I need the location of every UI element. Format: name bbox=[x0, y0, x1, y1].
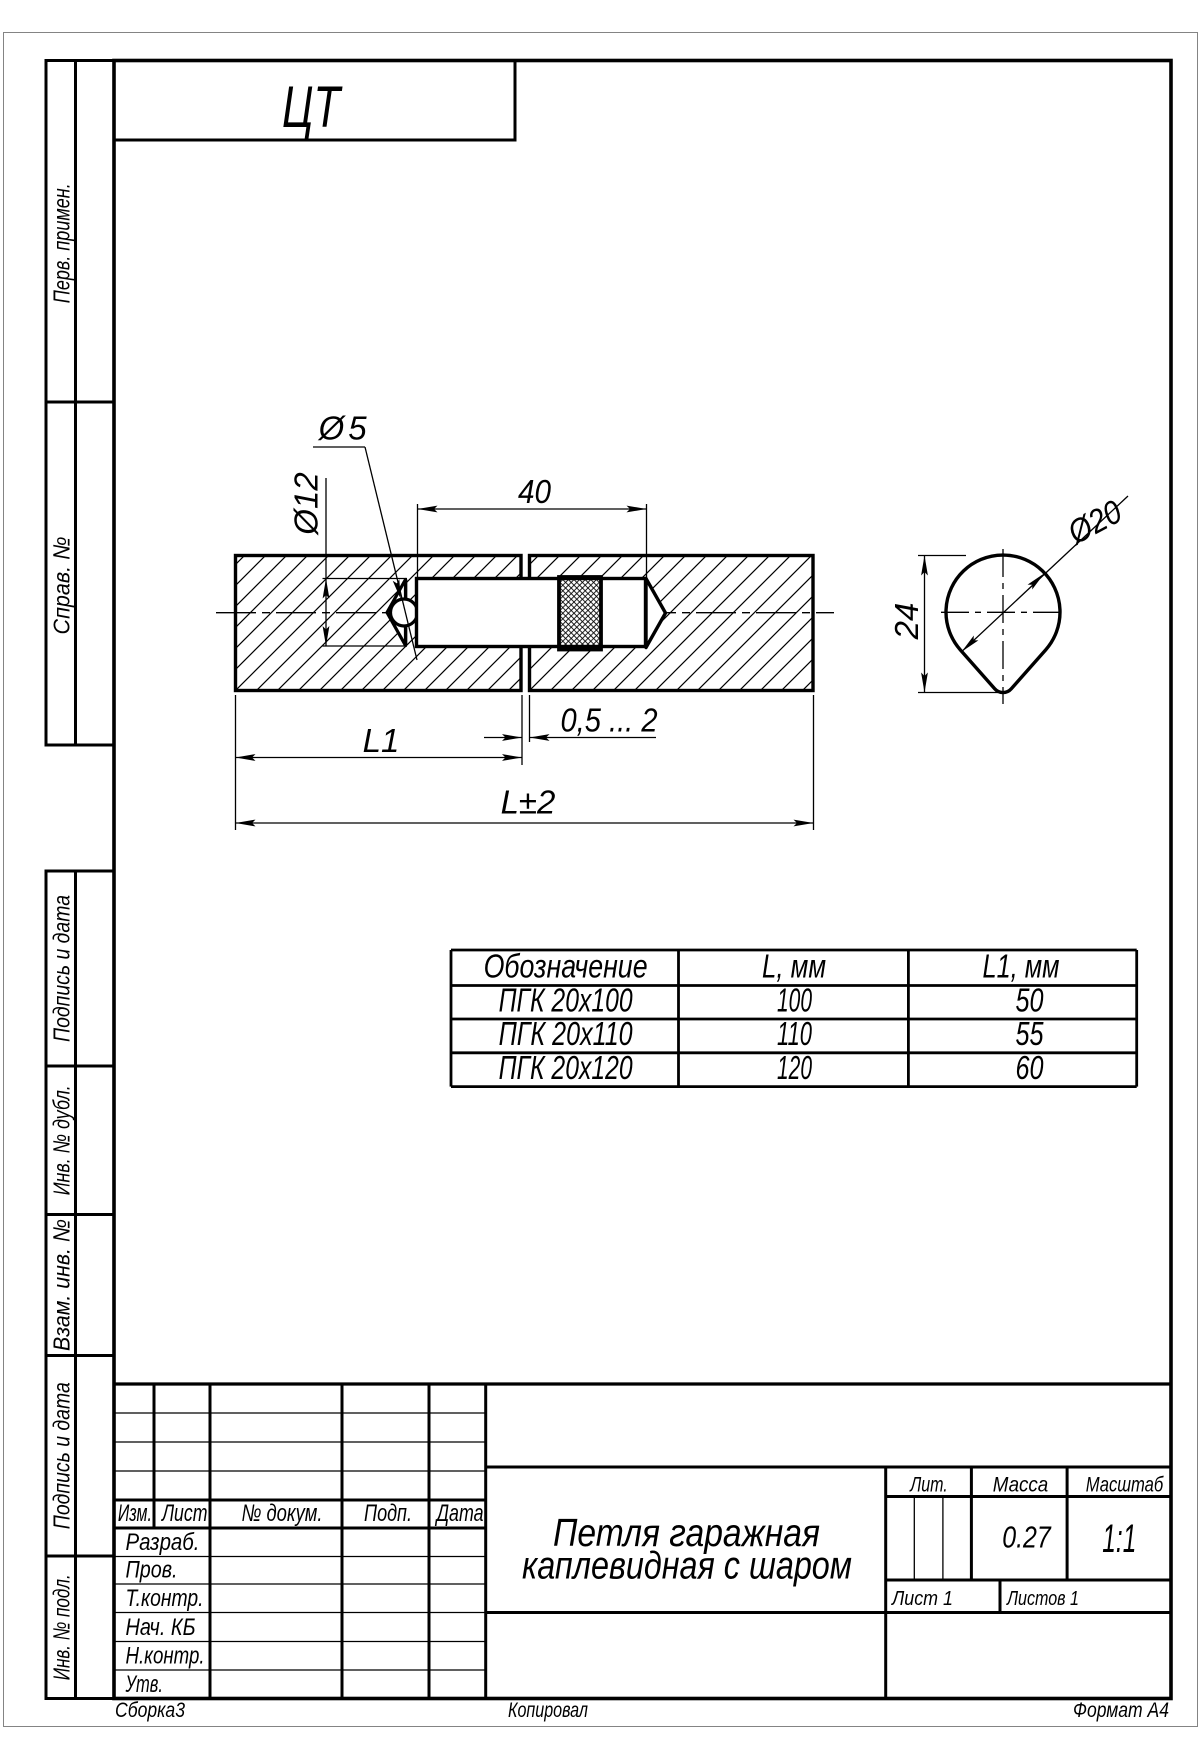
svg-text:Н.контр.: Н.контр. bbox=[126, 1643, 205, 1670]
svg-text:Изм.: Изм. bbox=[118, 1500, 152, 1527]
svg-text:каплевидная с шаром: каплевидная с шаром bbox=[522, 1544, 852, 1587]
svg-text:Копировал: Копировал bbox=[508, 1699, 588, 1722]
svg-text:Дата: Дата bbox=[434, 1500, 483, 1527]
svg-text:Масса: Масса bbox=[993, 1473, 1049, 1496]
svg-text:Ø12: Ø12 bbox=[288, 472, 325, 535]
svg-text:ПГК 20х120: ПГК 20х120 bbox=[499, 1049, 633, 1086]
svg-text:24: 24 bbox=[888, 603, 925, 641]
svg-text:Нач. КБ: Нач. КБ bbox=[126, 1614, 196, 1641]
svg-text:0,5 ... 2: 0,5 ... 2 bbox=[561, 702, 658, 739]
svg-text:ПГК 20х100: ПГК 20х100 bbox=[499, 982, 633, 1019]
svg-text:Ø5: Ø5 bbox=[318, 410, 371, 447]
svg-text:Листов 1: Листов 1 bbox=[1005, 1587, 1079, 1610]
svg-text:55: 55 bbox=[1016, 1015, 1044, 1052]
svg-text:110: 110 bbox=[777, 1015, 812, 1052]
svg-text:Подпись и дата: Подпись и дата bbox=[49, 1382, 75, 1529]
svg-text:0.27: 0.27 bbox=[1002, 1520, 1052, 1555]
svg-text:120: 120 bbox=[777, 1049, 812, 1086]
svg-text:Сборка3: Сборка3 bbox=[115, 1699, 185, 1722]
svg-text:1:1: 1:1 bbox=[1102, 1517, 1136, 1561]
svg-text:100: 100 bbox=[777, 982, 812, 1019]
svg-text:Справ. №: Справ. № bbox=[49, 537, 75, 635]
svg-text:L, мм: L, мм bbox=[762, 948, 826, 985]
svg-text:ЦТ: ЦТ bbox=[282, 75, 343, 140]
svg-text:50: 50 bbox=[1016, 982, 1044, 1019]
svg-text:40: 40 bbox=[518, 473, 552, 510]
svg-text:Обозначение: Обозначение bbox=[484, 948, 648, 985]
svg-text:Лист: Лист bbox=[160, 1500, 207, 1527]
svg-text:Разраб.: Разраб. bbox=[126, 1529, 200, 1556]
svg-text:Инв. № подл.: Инв. № подл. bbox=[49, 1574, 75, 1680]
svg-text:Пров.: Пров. bbox=[126, 1557, 178, 1584]
svg-text:Формат А4: Формат А4 bbox=[1073, 1699, 1169, 1722]
svg-text:№ докум.: № докум. bbox=[242, 1500, 323, 1527]
svg-text:ПГК 20х110: ПГК 20х110 bbox=[499, 1015, 633, 1052]
svg-text:Т.контр.: Т.контр. bbox=[126, 1585, 204, 1612]
svg-text:Инв. № дубл.: Инв. № дубл. bbox=[49, 1085, 75, 1195]
svg-text:Подпись и дата: Подпись и дата bbox=[49, 895, 75, 1042]
svg-text:Перв. примен.: Перв. примен. bbox=[49, 183, 75, 303]
svg-text:Взам. инв. №: Взам. инв. № bbox=[49, 1219, 75, 1351]
svg-text:Лит.: Лит. bbox=[909, 1473, 948, 1496]
svg-text:L1, мм: L1, мм bbox=[983, 948, 1060, 985]
svg-text:Подп.: Подп. bbox=[364, 1500, 412, 1527]
svg-text:L1: L1 bbox=[363, 722, 400, 759]
svg-text:Лист 1: Лист 1 bbox=[890, 1587, 953, 1610]
svg-text:L±2: L±2 bbox=[501, 784, 556, 821]
svg-text:Масштаб: Масштаб bbox=[1086, 1473, 1164, 1496]
svg-text:Утв.: Утв. bbox=[125, 1671, 163, 1698]
svg-text:60: 60 bbox=[1016, 1049, 1044, 1086]
